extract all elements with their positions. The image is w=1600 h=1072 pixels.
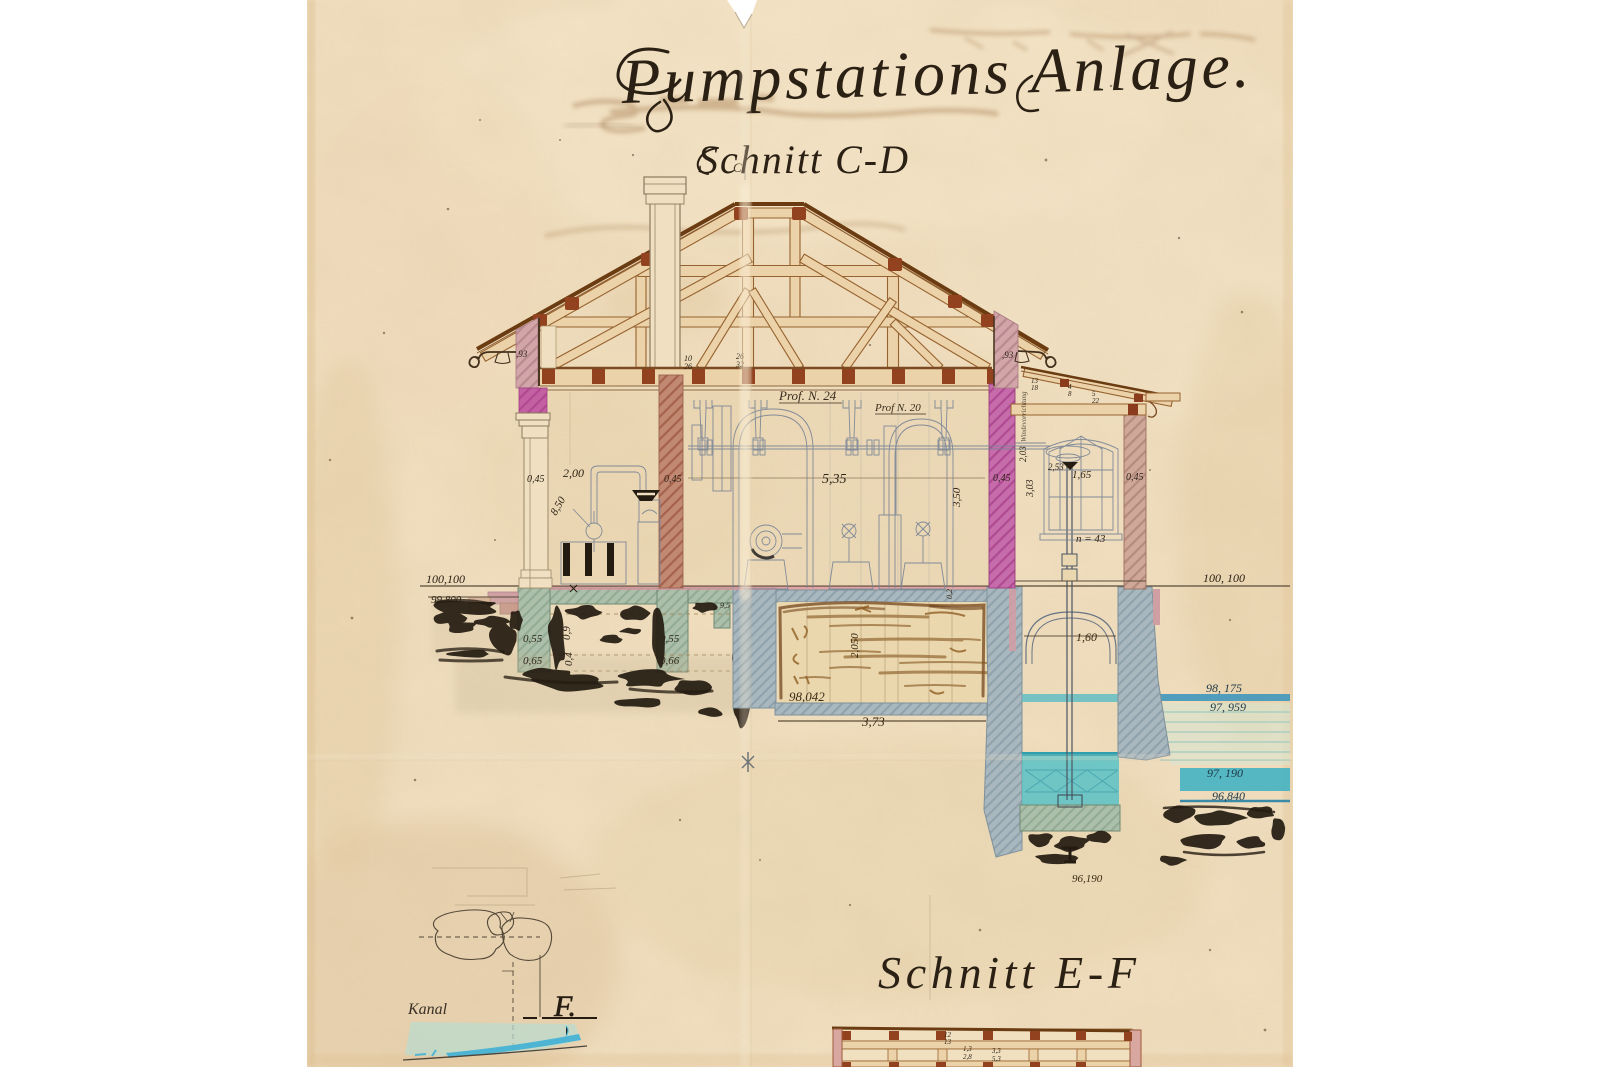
svg-text:Prof N. 20: Prof N. 20 bbox=[874, 402, 921, 414]
svg-text:96,840: 96,840 bbox=[1212, 789, 1245, 803]
svg-text:,93: ,93 bbox=[516, 349, 528, 359]
svg-text:99,800: 99,800 bbox=[431, 594, 462, 606]
svg-text:1,65: 1,65 bbox=[1072, 469, 1092, 481]
svg-text:Kanal: Kanal bbox=[407, 1001, 448, 1018]
svg-text:0,45: 0,45 bbox=[1126, 472, 1144, 483]
svg-text:0,2: 0,2 bbox=[945, 589, 954, 599]
svg-text:Windevorrichtung: Windevorrichtung bbox=[1020, 391, 1028, 442]
svg-text:n = 43: n = 43 bbox=[1076, 533, 1106, 545]
svg-text:1,60: 1,60 bbox=[1076, 630, 1097, 644]
svg-text:0,65: 0,65 bbox=[523, 655, 543, 667]
svg-text:97, 959: 97, 959 bbox=[1210, 700, 1246, 714]
svg-text:26: 26 bbox=[684, 362, 692, 371]
svg-text:97, 190: 97, 190 bbox=[1207, 766, 1243, 780]
svg-text:3,73: 3,73 bbox=[861, 714, 885, 729]
svg-text:0,4: 0,4 bbox=[563, 652, 575, 666]
svg-text:0,55: 0,55 bbox=[523, 633, 543, 645]
svg-text:5,35: 5,35 bbox=[822, 472, 847, 487]
svg-text:100,100: 100,100 bbox=[426, 572, 465, 586]
svg-text:22: 22 bbox=[1092, 397, 1100, 405]
svg-text:0,9: 0,9 bbox=[561, 626, 573, 640]
svg-text:Schnitt E-F: Schnitt E-F bbox=[878, 947, 1137, 998]
svg-text:3,3: 3,3 bbox=[991, 1047, 1001, 1055]
svg-text:1,3: 1,3 bbox=[963, 1045, 972, 1053]
svg-text:2,03: 2,03 bbox=[1018, 446, 1028, 462]
svg-text:0,45: 0,45 bbox=[527, 474, 545, 485]
svg-text:100, 100: 100, 100 bbox=[1203, 571, 1245, 585]
svg-text:0,45: 0,45 bbox=[664, 474, 682, 485]
svg-text:3,50: 3,50 bbox=[951, 487, 963, 508]
svg-text:2,00: 2,00 bbox=[563, 466, 584, 480]
svg-text:13: 13 bbox=[944, 1038, 952, 1046]
svg-text:,93: ,93 bbox=[1002, 350, 1014, 360]
svg-text:96,190: 96,190 bbox=[1072, 873, 1103, 885]
svg-text:98,042: 98,042 bbox=[789, 689, 825, 704]
svg-text:Schnitt C-D: Schnitt C-D bbox=[698, 137, 908, 182]
svg-text:98, 175: 98, 175 bbox=[1206, 681, 1242, 695]
svg-text:2,53: 2,53 bbox=[1048, 462, 1064, 472]
svg-text:0,66: 0,66 bbox=[660, 655, 680, 667]
svg-text:18: 18 bbox=[1031, 384, 1039, 392]
svg-text:0,55: 0,55 bbox=[660, 633, 680, 645]
svg-text:9,5: 9,5 bbox=[720, 601, 730, 610]
svg-text:3,03: 3,03 bbox=[1025, 480, 1036, 499]
svg-text:5,3: 5,3 bbox=[992, 1055, 1001, 1063]
svg-text:Prof. N. 24: Prof. N. 24 bbox=[778, 388, 837, 403]
svg-text:2,050: 2,050 bbox=[849, 633, 861, 658]
svg-text:0,45: 0,45 bbox=[993, 473, 1011, 484]
svg-text:8: 8 bbox=[1068, 390, 1072, 398]
svg-text:2,8: 2,8 bbox=[963, 1053, 972, 1061]
